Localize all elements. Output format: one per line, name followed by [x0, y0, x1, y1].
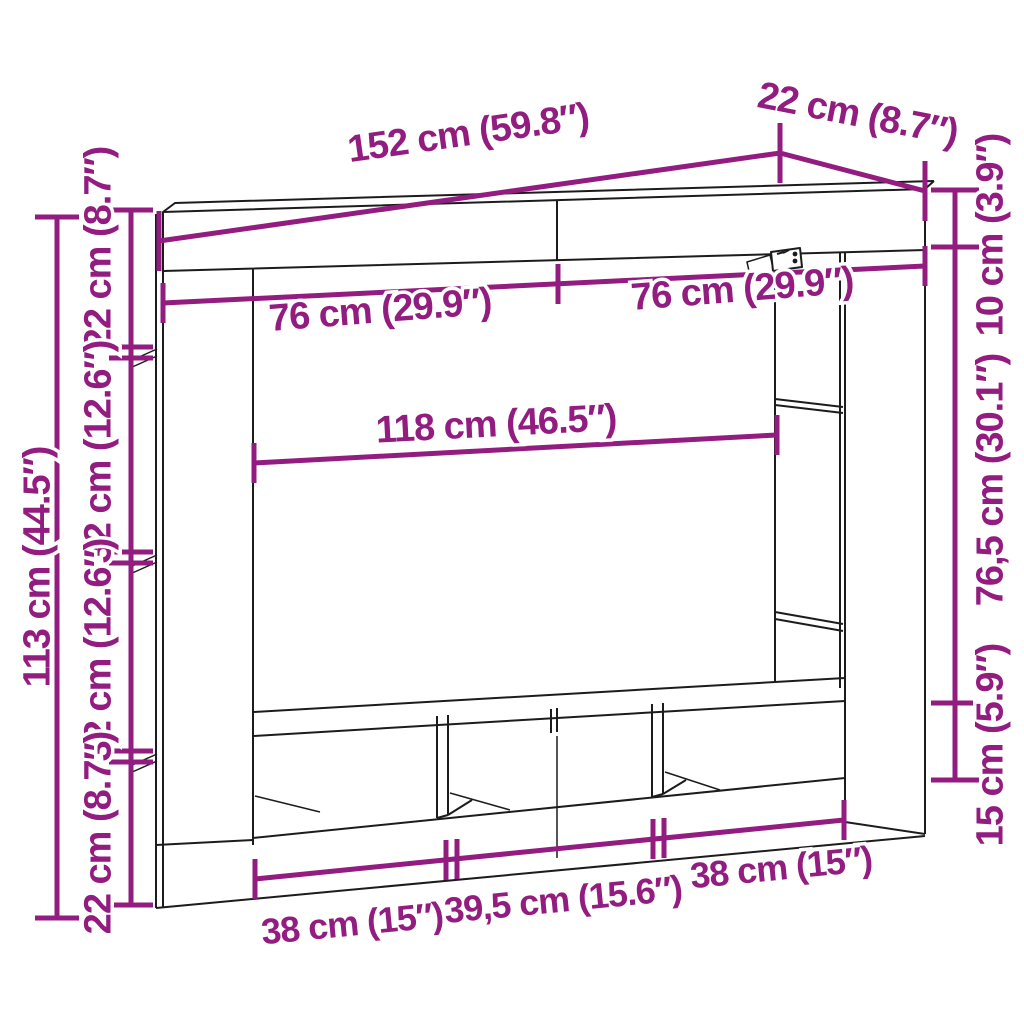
label-bottom-seg-1: 38 cm (15″) — [259, 894, 444, 952]
right-panel-bottom — [845, 822, 925, 834]
cubby-floor-lines — [255, 772, 720, 812]
right-shelf-upper — [775, 399, 843, 413]
label-cabinet-left-half: 76 cm (29.9″) — [267, 281, 492, 340]
bench-center-split — [551, 708, 557, 733]
diagram-canvas: 152 cm (59.8″) 22 cm (8.7″) 76 cm (29.9″… — [0, 0, 1024, 1024]
top-cabinet — [163, 189, 925, 271]
label-right-middle-height: 76,5 cm (30.1″) — [969, 354, 1011, 606]
label-right-top-height: 10 cm (3.9″) — [969, 134, 1011, 337]
label-left-total-height: 113 cm (44.5″) — [16, 447, 58, 688]
dimension-diagram: 152 cm (59.8″) 22 cm (8.7″) 76 cm (29.9″… — [0, 0, 1024, 1024]
label-depth: 22 cm (8.7″) — [754, 74, 961, 154]
label-left-seg-4: 22 cm (8.7″) — [77, 732, 119, 935]
left-plinth-line — [156, 840, 253, 845]
right-shelf-lower — [775, 612, 843, 631]
label-bottom-seg-3: 38 cm (15″) — [688, 838, 873, 896]
label-left-seg-3: 32 cm (12.6″) — [77, 539, 119, 762]
label-left-seg-2: 32 cm (12.6″) — [77, 341, 119, 564]
cubby-divider-1 — [437, 715, 472, 818]
label-cabinet-right-half: 76 cm (29.9″) — [629, 260, 854, 319]
label-left-seg-1: 22 cm (8.7″) — [77, 147, 119, 350]
label-right-bottom-height: 15 cm (5.9″) — [969, 644, 1011, 847]
label-top-width: 152 cm (59.8″) — [345, 96, 591, 171]
cubby-divider-2 — [652, 703, 686, 797]
